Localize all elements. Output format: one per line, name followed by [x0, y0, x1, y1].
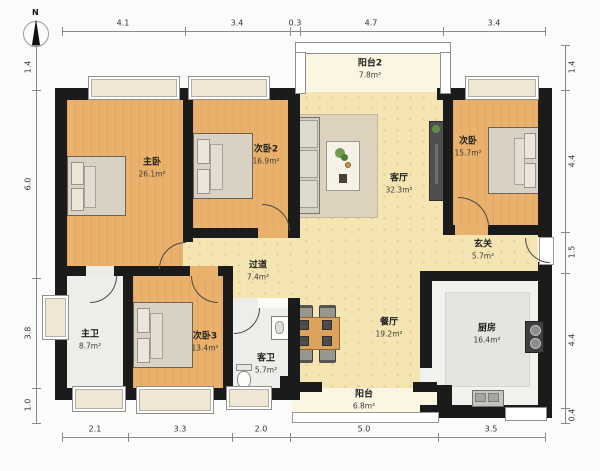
dim-label: 1.5 [568, 246, 577, 259]
dim-label: 1.0 [24, 399, 33, 412]
pillow [71, 188, 84, 211]
window-master-top [88, 76, 180, 100]
dim-tick [32, 45, 41, 46]
placemat [299, 336, 309, 346]
pillow [525, 163, 537, 188]
bed-blanket [489, 128, 509, 193]
balcony2-glass-left [295, 52, 306, 94]
threshold-guestbath [233, 298, 258, 308]
dim-tick [62, 433, 63, 442]
pillow [71, 162, 84, 185]
burner-icon [530, 325, 541, 336]
placemat [322, 320, 332, 330]
room-label-hallway: 过道7.4m² [247, 260, 269, 281]
bed-sheet [514, 138, 525, 186]
balcony2-glass-top [295, 42, 451, 54]
window-masterbath-bottom [72, 386, 126, 412]
wall-living-bedroom-right [443, 100, 453, 235]
dim-tick [561, 232, 570, 233]
floor-living-lower-entry [300, 235, 538, 271]
placemat [299, 320, 309, 330]
dim-tick [62, 27, 63, 36]
window-bedroom2-top [188, 76, 270, 100]
dim-tick [32, 423, 41, 424]
tv-icon [435, 144, 438, 184]
dim-label: 3.8 [24, 327, 33, 340]
coffee-table [326, 141, 360, 191]
sofa-cushion [299, 120, 318, 148]
bed-blanket [169, 303, 192, 367]
window-pane [91, 79, 177, 97]
bed-bedroom2 [193, 133, 253, 199]
dim-tick [561, 273, 570, 274]
dim-label: 4.7 [365, 19, 378, 28]
room-label-master-bedroom: 主卧26.1m² [138, 157, 165, 178]
room-label-balcony: 阳台6.8m² [353, 389, 375, 410]
threshold-bedroom3 [190, 266, 218, 276]
bed-master [67, 156, 126, 216]
dim-line-top [62, 31, 545, 32]
pillow [197, 139, 211, 164]
bed-blanket [102, 157, 125, 215]
dim-line-right [565, 45, 566, 423]
compass-needle-icon [32, 19, 40, 45]
dim-label: 3.5 [485, 425, 498, 434]
pillow [197, 169, 211, 194]
wall-dining-kitchen [420, 271, 432, 368]
window-pane [139, 389, 211, 411]
kitchen-sink [472, 390, 504, 407]
window-masterbath-left [42, 295, 69, 340]
wall-bedroom3-guestbath [223, 266, 233, 400]
plant-icon [341, 154, 348, 161]
window-pane [45, 298, 66, 337]
bed-bedroom-right [488, 127, 540, 194]
dim-label: 4.1 [117, 19, 130, 28]
dim-tick [438, 433, 439, 442]
window-guestbath-bottom [226, 386, 272, 410]
dim-label: 1.4 [24, 61, 33, 74]
balcony-post-left [280, 376, 292, 400]
dim-label: 2.0 [255, 425, 268, 434]
window-pane [468, 79, 536, 97]
wall-entry-kitchen [420, 271, 552, 281]
window-bedroom3-bottom [136, 386, 214, 414]
dim-tick [290, 27, 291, 36]
window-bedroom-right-top [465, 76, 539, 100]
dim-tick [561, 45, 570, 46]
wall-masterbath-bedroom3 [123, 266, 133, 400]
sink-bowl [275, 321, 284, 334]
dim-tick [561, 90, 570, 91]
dim-tick [185, 27, 186, 36]
stove [525, 321, 544, 353]
bowl-icon [345, 162, 351, 168]
room-label-bedroom2: 次卧216.9m² [252, 144, 279, 165]
wall-left-lower [55, 336, 67, 400]
burner-icon [530, 338, 541, 349]
dim-tick [32, 278, 41, 279]
wall-left-upper [55, 88, 67, 297]
bed-sheet [210, 144, 222, 191]
wall-bedroom2-bottom [193, 228, 258, 238]
room-label-living: 客厅32.3m² [385, 173, 412, 194]
pillow [137, 308, 151, 333]
placemat [322, 336, 332, 346]
dim-tick [300, 27, 301, 36]
window-pane [229, 389, 269, 407]
window-pane [75, 389, 123, 409]
dim-label: 4.4 [568, 155, 577, 168]
balcony-post-right [437, 385, 452, 418]
dim-label: 4.4 [568, 334, 577, 347]
dim-tick [561, 423, 570, 424]
pillow [137, 338, 151, 363]
room-label-master-bath: 主卫8.7m² [79, 329, 101, 350]
dim-label: 6.0 [24, 178, 33, 191]
dim-tick [32, 90, 41, 91]
wall-bedroom-right-bottom-b [488, 225, 538, 235]
sink-basin [475, 393, 486, 402]
bed-sheet [84, 166, 96, 209]
dim-label: 3.4 [231, 19, 244, 28]
window-pane [191, 79, 267, 97]
dim-label: 5.0 [358, 425, 371, 434]
room-label-dining: 餐厅19.2m² [375, 317, 402, 338]
plant-icon [432, 125, 440, 133]
dim-tick [545, 433, 546, 442]
wall-bedroom2-living [288, 100, 300, 238]
dim-label: 1.4 [568, 61, 577, 74]
room-label-bedroom3: 次卧313.4m² [191, 331, 218, 352]
dim-label: 2.1 [89, 425, 102, 434]
toilet-tank [236, 364, 252, 371]
balcony2-glass-right [440, 52, 451, 94]
room-label-bedroom-right: 次卧15.7m² [454, 136, 481, 157]
dim-tick [545, 27, 546, 36]
dim-line-bottom [62, 437, 545, 438]
dim-tick [32, 388, 41, 389]
sofa-cushion [299, 180, 318, 208]
floor-plan: 主卧26.1m² 次卧216.9m² 次卧15.7m² 次卧313.4m² 客厅… [0, 0, 600, 471]
bed-blanket [229, 134, 252, 198]
dim-label: 0.3 [289, 19, 302, 28]
room-label-guest-bath: 客卫5.7m² [255, 353, 277, 374]
wall-right-upper [538, 88, 552, 237]
dim-tick [232, 433, 233, 442]
wall-dining-balcony-b [413, 382, 437, 392]
dim-label: 0.4 [568, 409, 577, 422]
dim-tick [290, 433, 291, 442]
pillow [525, 133, 537, 158]
tray-icon [339, 174, 347, 183]
balcony-railing [292, 412, 439, 423]
bed-bedroom3 [133, 302, 193, 368]
compass-north-label: N [32, 8, 39, 17]
wall-master-bedroom2 [183, 100, 193, 242]
threshold-masterbath [86, 266, 114, 276]
dim-tick [443, 27, 444, 36]
dim-label: 3.4 [488, 19, 501, 28]
room-label-kitchen: 厨房16.4m² [473, 323, 500, 344]
window-kitchen-bottom [505, 407, 547, 421]
room-label-entry: 玄关5.7m² [472, 239, 494, 260]
dim-line-left [36, 45, 37, 423]
dim-label: 3.3 [174, 425, 187, 434]
sink-basin [488, 393, 499, 402]
sofa-cushion [299, 150, 318, 178]
dim-tick [128, 433, 129, 442]
room-label-balcony2: 阳台27.8m² [358, 58, 382, 79]
bed-sheet [150, 313, 162, 360]
